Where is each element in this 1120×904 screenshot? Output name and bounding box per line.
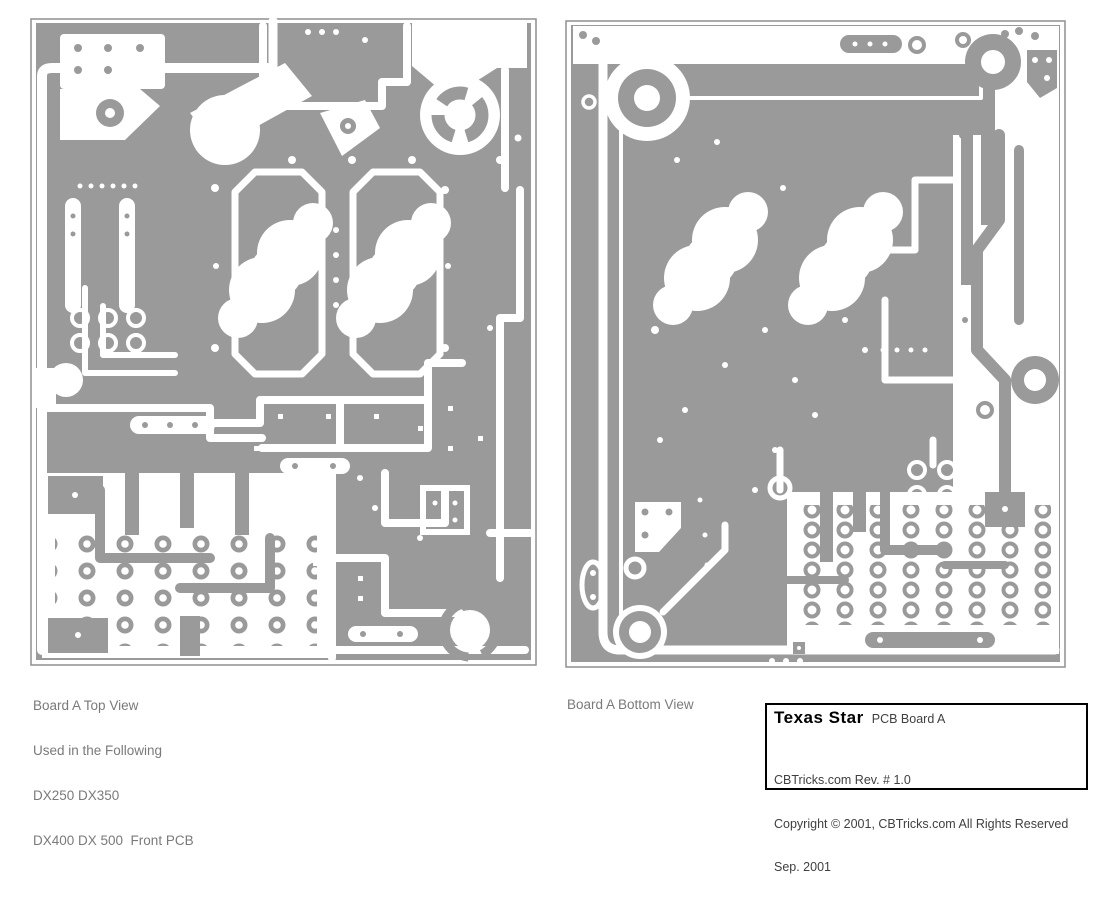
caption-line: Used in the Following	[33, 743, 194, 758]
title-block: Texas Star PCB Board A CBTricks.com Rev.…	[765, 703, 1088, 790]
title-block-info: CBTricks.com Rev. # 1.0 Copyright © 2001…	[774, 744, 1079, 904]
pad-field-bottom-left	[42, 473, 332, 658]
pcb-bottom-artwork	[565, 20, 1066, 668]
pcb-top-artwork	[30, 18, 537, 666]
pcb-board-a-bottom-view-image	[565, 20, 1066, 668]
title-block-header: Texas Star PCB Board A	[774, 708, 1079, 728]
caption-line: DX250 DX350	[33, 788, 194, 803]
board-name: PCB Board A	[872, 712, 946, 726]
copyright-line: Copyright © 2001, CBTricks.com All Right…	[774, 817, 1079, 832]
caption-board-a-top: Board A Top View Used in the Following D…	[33, 668, 194, 863]
revision-line: CBTricks.com Rev. # 1.0	[774, 773, 1079, 788]
caption-board-a-bottom: Board A Bottom View	[567, 667, 694, 727]
date-line: Sep. 2001	[774, 860, 1079, 875]
pcb-board-a-top-view-image	[30, 18, 537, 666]
caption-line: Board A Top View	[33, 698, 194, 713]
trimmer-footprint-top	[420, 75, 500, 155]
brand-name: Texas Star	[774, 708, 864, 728]
caption-line: DX400 DX 500 Front PCB	[33, 833, 194, 848]
caption-line: Board A Bottom View	[567, 697, 694, 712]
